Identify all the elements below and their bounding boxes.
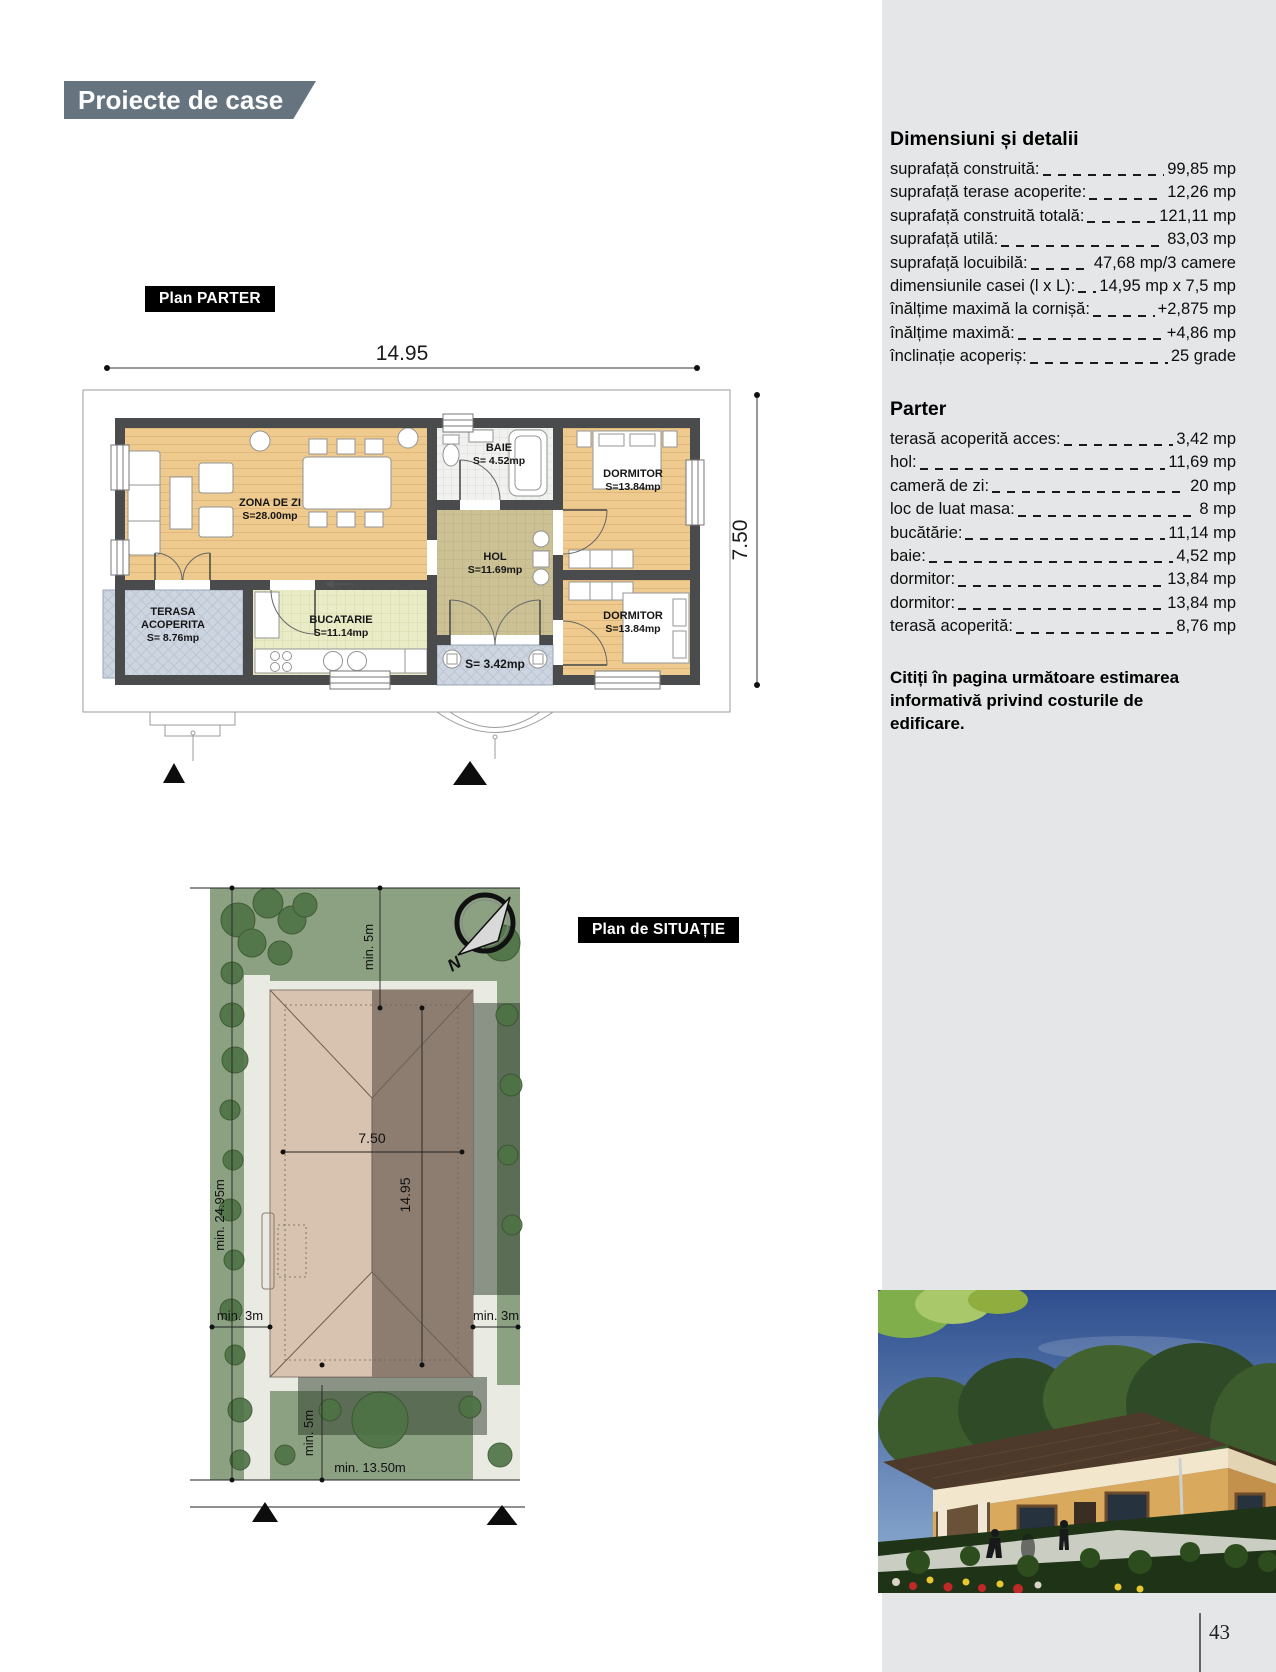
entrance-arrow-main [453,761,487,785]
hall-table [533,569,549,585]
detail-label: înălțime maximă la cornișă: [890,298,1090,321]
parter-title: Parter [890,398,1236,421]
fridge [405,649,427,673]
svg-text:HOL: HOL [483,551,507,563]
svg-text:min. 13.50m: min. 13.50m [334,1460,406,1475]
toilet [443,444,459,466]
svg-text:S=13.84mp: S=13.84mp [605,481,660,493]
page-header-banner: Proiecte de case [64,81,316,119]
svg-text:14.95: 14.95 [376,342,429,365]
detail-value: +2,875 mp [1158,298,1236,321]
detail-row: suprafață locuibilă:47,68 mp/3 camere [890,252,1236,275]
parter-row: cameră de zi:20 mp [890,475,1236,498]
detail-value: 11,69 mp [1168,451,1236,474]
parter-row: baie:4,52 mp [890,545,1236,568]
detail-row: suprafață construită totală:121,11 mp [890,205,1236,228]
dining-table [303,457,391,509]
floor-plan-label: Plan PARTER [145,286,275,312]
dash-leader [1031,268,1091,270]
detail-row: înălțime maximă:+4,86 mp [890,322,1236,345]
detail-label: dormitor: [890,568,955,591]
detail-value: 47,68 mp/3 camere [1094,252,1236,275]
detail-label: hol: [890,451,917,474]
detail-label: dormitor: [890,592,955,615]
detail-value: 13,84 mp [1167,568,1236,591]
window [111,445,129,490]
detail-value: 121,11 mp [1159,205,1236,228]
kitchen-sink [348,652,367,671]
window [595,671,660,689]
svg-text:S= 3.42mp: S= 3.42mp [465,657,525,671]
dash-leader [929,561,1174,563]
detail-label: loc de luat masa: [890,498,1015,521]
svg-text:BAIE: BAIE [486,442,512,454]
detail-value: 20 mp [1190,475,1236,498]
svg-text:S=13.84mp: S=13.84mp [605,623,660,635]
site-entrance-arrow [485,1505,519,1525]
dash-leader [1018,515,1197,517]
header-title: Proiecte de case [78,85,283,115]
detail-value: 12,26 mp [1167,181,1236,204]
dash-leader [1064,444,1174,446]
dash-leader [1018,338,1164,340]
svg-text:S=11.14mp: S=11.14mp [314,627,369,639]
detail-value: 14,95 mp x 7,5 mp [1099,275,1236,298]
window [443,414,473,432]
svg-text:BUCATARIE: BUCATARIE [309,614,372,626]
dimensions-details-panel: Dimensiuni și detalii suprafață construi… [890,128,1236,369]
svg-text:min. 24.95m: min. 24.95m [212,1179,227,1251]
details-title: Dimensiuni și detalii [890,128,1236,151]
plant [250,431,270,451]
detail-row: dimensiunile casei (l x L):14,95 mp x 7,… [890,275,1236,298]
detail-label: suprafață terase acoperite: [890,181,1086,204]
parter-row: terasă acoperită acces:3,42 mp [890,428,1236,451]
cost-note: Citiți în pagina următoare estimarea inf… [890,666,1220,735]
kitchen-counter [255,592,279,638]
detail-label: cameră de zi: [890,475,989,498]
svg-text:7.50: 7.50 [358,1130,385,1146]
detail-label: dimensiunile casei (l x L): [890,275,1075,298]
dash-leader [965,538,1165,540]
svg-text:TERASA: TERASA [150,606,195,618]
nightstand [577,431,591,447]
parter-row: dormitor:13,84 mp [890,568,1236,591]
dash-leader [1093,315,1155,317]
detail-value: +4,86 mp [1167,322,1236,345]
svg-text:DORMITOR: DORMITOR [603,610,663,622]
footer-divider [1199,1613,1201,1672]
dash-leader [1078,291,1096,293]
nightstand [663,431,677,447]
dash-leader [958,585,1164,587]
wardrobe [569,550,633,568]
parter-row: loc de luat masa:8 mp [890,498,1236,521]
plant [398,428,418,448]
svg-text:S= 8.76mp: S= 8.76mp [147,632,199,644]
svg-text:S=11.69mp: S=11.69mp [468,564,523,576]
sofa [128,451,160,555]
dash-leader [958,608,1164,610]
svg-text:S=28.00mp: S=28.00mp [242,510,297,522]
svg-text:min. 3m: min. 3m [217,1308,263,1323]
coffee-table [170,477,192,529]
svg-text:min. 5m: min. 5m [301,1410,316,1456]
floorplan-height-dimension: 7.50 [729,392,760,688]
parter-row: hol:11,69 mp [890,451,1236,474]
house-render-photo [878,1290,1276,1593]
svg-text:DORMITOR: DORMITOR [603,468,663,480]
dash-leader [1089,198,1164,200]
parter-row: bucătărie:11,14 mp [890,522,1236,545]
dash-leader [1087,221,1156,223]
detail-label: suprafață construită: [890,158,1040,181]
kitchen-sink [324,652,343,671]
window [686,460,704,525]
detail-row: înclinație acoperiș:25 grade [890,345,1236,368]
dash-leader [1043,174,1165,176]
detail-label: terasă acoperită acces: [890,428,1061,451]
detail-label: înclinație acoperiș: [890,345,1027,368]
detail-value: 13,84 mp [1167,592,1236,615]
detail-label: bucătărie: [890,522,962,545]
detail-row: suprafață utilă:83,03 mp [890,228,1236,251]
detail-value: 25 grade [1171,345,1236,368]
dash-leader [1030,362,1168,364]
magazine-page: Proiecte de case Dimensiuni și detalii s… [0,0,1276,1672]
dash-leader [1016,632,1173,634]
svg-text:14.95: 14.95 [397,1177,413,1212]
parter-panel: Parter terasă acoperită acces:3,42 mp ho… [890,398,1236,639]
svg-text:min. 5m: min. 5m [361,924,376,970]
site-entrance-arrow [252,1502,278,1522]
detail-value: 8,76 mp [1176,615,1236,638]
window [111,540,129,575]
detail-value: 99,85 mp [1167,158,1236,181]
site-plan-drawing: N min. 5m min. [180,825,525,1525]
detail-label: terasă acoperită: [890,615,1013,638]
svg-text:ACOPERITA: ACOPERITA [141,619,205,631]
site-plan-label: Plan de SITUAȚIE [578,917,739,943]
dash-leader [1001,245,1164,247]
detail-value: 83,03 mp [1167,228,1236,251]
house-roof-plan [262,990,473,1377]
dash-leader [920,468,1166,470]
entrance-arrow-left [163,763,185,783]
detail-value: 4,52 mp [1176,545,1236,568]
floor-plan-drawing: 14.95 7.50 [75,325,790,800]
detail-label: suprafață utilă: [890,228,998,251]
window [330,671,390,689]
detail-row: suprafață terase acoperite:12,26 mp [890,181,1236,204]
detail-row: suprafață construită:99,85 mp [890,158,1236,181]
floorplan-width-dimension: 14.95 [104,342,700,371]
parter-row: dormitor:13,84 mp [890,592,1236,615]
svg-text:min. 3m: min. 3m [473,1308,519,1323]
detail-label: baie: [890,545,926,568]
armchair [199,463,233,493]
page-number: 43 [1209,1620,1230,1645]
detail-label: suprafață locuibilă: [890,252,1028,275]
detail-label: înălțime maximă: [890,322,1015,345]
svg-text:S= 4.52mp: S= 4.52mp [473,455,525,467]
armchair [199,507,233,537]
detail-value: 8 mp [1199,498,1236,521]
dash-leader [992,491,1187,493]
parter-row: terasă acoperită:8,76 mp [890,615,1236,638]
svg-text:ZONA DE ZI: ZONA DE ZI [239,497,301,509]
detail-value: 3,42 mp [1176,428,1236,451]
detail-row: înălțime maximă la cornișă:+2,875 mp [890,298,1236,321]
hall-table [533,531,549,547]
detail-value: 11,14 mp [1168,522,1236,545]
detail-label: suprafață construită totală: [890,205,1084,228]
svg-text:7.50: 7.50 [729,520,752,561]
